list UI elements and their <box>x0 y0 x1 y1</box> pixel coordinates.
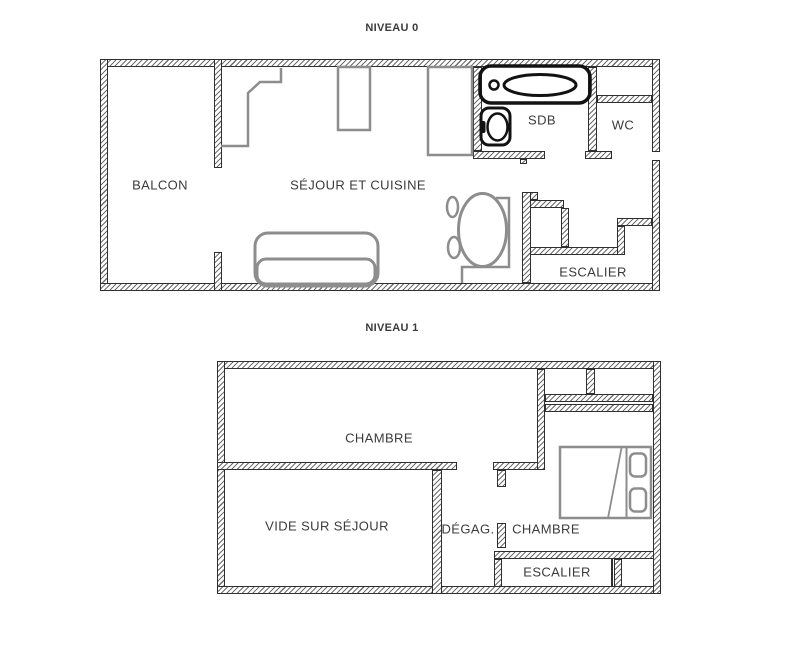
kitchen-unit-icon <box>338 67 370 130</box>
wall-stair-step <box>617 226 625 255</box>
room-label-chambre-2: CHAMBRE <box>512 522 580 537</box>
wall-sdb-door-jamb <box>520 159 527 164</box>
room-label-sdb: SDB <box>528 113 556 128</box>
wall-chambre2-top <box>545 404 653 412</box>
sofa-icon <box>255 233 378 286</box>
floor-plan: NIVEAU 0 BALCON SÉJOUR ET CUISINE SDB WC… <box>0 0 800 661</box>
wall-outer-top <box>100 59 660 67</box>
chair-icon <box>448 237 460 258</box>
sink-icon <box>481 108 511 145</box>
wall-outer-top <box>217 361 661 369</box>
wall-outer-bottom <box>100 283 660 291</box>
room-label-escalier-1: ESCALIER <box>523 565 591 580</box>
wall-closet-right <box>561 208 569 247</box>
wall-chambre-divider <box>537 369 545 470</box>
room-label-balcon: BALCON <box>132 178 188 193</box>
room-label-escalier-0: ESCALIER <box>559 265 627 280</box>
wall-degag-jamb-lower <box>497 523 506 548</box>
wall-closet-top <box>530 200 564 208</box>
wall-escalier-top <box>494 551 654 559</box>
level-0-title: NIVEAU 0 <box>365 22 418 34</box>
wall-outer-left <box>100 59 108 291</box>
wall-sdb-bottom <box>473 151 545 159</box>
room-label-chambre-1: CHAMBRE <box>345 431 413 446</box>
wall-outer-right-lower <box>652 160 660 291</box>
room-label-wc: WC <box>612 118 634 133</box>
stair-edge-line <box>611 559 613 587</box>
room-label-sejour-cuisine: SÉJOUR ET CUISINE <box>290 178 426 193</box>
wall-closet-bottom <box>545 394 653 402</box>
level-1-title: NIVEAU 1 <box>365 322 418 334</box>
wall-balcony-divider-lower <box>214 252 222 291</box>
wall-escalier-left <box>494 559 502 587</box>
wall-balcony-divider-upper <box>214 59 222 168</box>
wall-closet-stub <box>586 369 595 394</box>
desk-icon <box>462 198 509 283</box>
wall-wc-closet <box>597 95 652 103</box>
wall-stair-high <box>617 218 652 226</box>
appliance-icon <box>428 67 472 155</box>
wall-wc-bottom <box>585 151 612 159</box>
wall-outer-right-upper <box>652 59 660 152</box>
double-bed-icon <box>560 447 651 518</box>
wall-stair-low <box>530 247 622 255</box>
chair-icon <box>447 197 458 217</box>
room-label-vide-sur-sejour: VIDE SUR SÉJOUR <box>265 519 389 534</box>
wall-mid-left <box>217 462 457 470</box>
dining-table-icon <box>459 194 507 267</box>
kitchen-counter-icon <box>221 68 281 146</box>
wall-escalier-inner <box>614 559 622 587</box>
wall-sdb-wc-divider <box>588 67 597 151</box>
wall-outer-left <box>217 361 225 594</box>
room-label-degagement: DÉGAG. <box>442 522 495 537</box>
wall-outer-right <box>653 361 661 594</box>
bathtub-icon <box>480 66 590 103</box>
wall-sdb-left <box>473 67 482 151</box>
wall-vide-degag-divider <box>432 470 442 594</box>
wall-degag-jamb-upper <box>497 470 506 487</box>
